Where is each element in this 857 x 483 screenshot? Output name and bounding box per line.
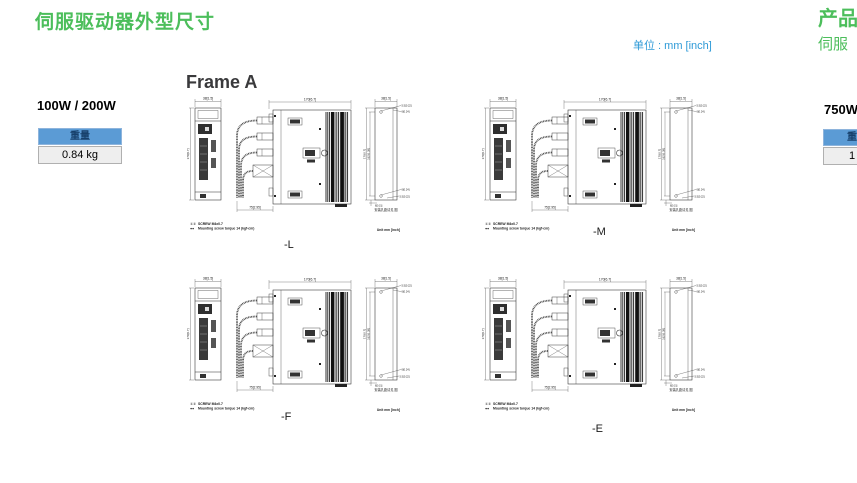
side-depth-dim: 170[6.7] (304, 98, 316, 102)
front-width-dim: 38[1.5] (498, 97, 508, 101)
page-title: 伺服驱动器外型尺寸 (35, 7, 215, 34)
rear-hole-bot1-dim: 6[0.24] (402, 188, 410, 192)
front-view (484, 99, 516, 200)
drawing-unit-note: Unit mm [inch] (377, 408, 400, 412)
screw-note-line2: Mounting screw torque 14 (kgf-cm) (198, 227, 254, 231)
rear-width-dim: 38[1.5] (381, 277, 391, 281)
weight-table: 重量 0.84 kg (38, 128, 122, 164)
screw-note-line1: SCREW M4x0.7 (493, 222, 518, 226)
cable-clearance-dim: 75[2.95] (544, 206, 556, 210)
weight-table-header: 重量 (38, 128, 122, 145)
rear-hole-top2-dim: 6[0.24] (402, 290, 410, 294)
rear-mount-dim: 162[6.38] (366, 148, 370, 160)
rear-hole-top2-dim: 6[0.24] (697, 110, 705, 114)
rear-mounting-note: 安装孔距请见 图 (669, 207, 692, 212)
rear-view (365, 99, 401, 206)
dimension-drawing: 38[1.5] 170[6.7] (480, 268, 712, 436)
screw-bullet-prefix: ●● (190, 407, 194, 411)
rear-hole-top2-dim: 6[0.24] (697, 290, 705, 294)
front-height-dim: 170[6.7] (481, 328, 485, 339)
heatsink-fins (621, 292, 643, 382)
screw-note-prefix: ①② (485, 402, 491, 406)
rear-hole-bot2-dim: 5.5[0.22] (400, 375, 410, 379)
screw-note-prefix: ①② (190, 222, 196, 226)
weight-table-header: 重 (823, 129, 857, 146)
rear-mounting-note: 安装孔距请见 图 (374, 387, 397, 392)
front-width-dim: 38[1.5] (498, 277, 508, 281)
next-page-weight-table: 重 1 (823, 129, 857, 165)
front-view (484, 279, 516, 380)
side-depth-dim: 170[6.7] (599, 98, 611, 102)
screw-bullet-prefix: ●● (190, 227, 194, 231)
drawing-variant-label: -E (592, 423, 603, 435)
cable-clearance-dim: 75[2.95] (544, 386, 556, 390)
screw-bullet-prefix: ●● (485, 227, 489, 231)
rear-hole-top1-dim: 5.5[0.22] (697, 104, 707, 108)
screw-note-line2: Mounting screw torque 14 (kgf-cm) (493, 227, 549, 231)
side-depth-dim: 170[6.7] (599, 278, 611, 282)
next-page-power-label: 750W (824, 102, 857, 117)
rear-hole-bot2-dim: 5.5[0.22] (695, 195, 705, 199)
drawing-unit-note: Unit mm [inch] (672, 228, 695, 232)
unit-note: 单位 : mm [inch] (633, 37, 712, 53)
rear-hole-top1-dim: 5.5[0.22] (402, 104, 412, 108)
next-page-subtitle-fragment: 伺服 (818, 33, 848, 54)
dimension-drawing: 38[1.5] 170[6.7] (480, 88, 712, 256)
drawing-unit-note: Unit mm [inch] (672, 408, 695, 412)
dimension-drawing: 38[1.5] 170[6.7] (185, 88, 417, 256)
rear-view (660, 279, 696, 386)
front-height-dim: 170[6.7] (481, 148, 485, 159)
side-depth-dim: 170[6.7] (304, 278, 316, 282)
rear-hole-bot2-dim: 5.5[0.22] (695, 375, 705, 379)
dimension-drawing: 38[1.5] 170[6.7] (185, 268, 417, 436)
front-height-dim: 170[6.7] (186, 328, 190, 339)
heatsink-fins (326, 112, 348, 202)
catalog-page: 伺服驱动器外型尺寸 单位 : mm [inch] 产品 伺服 750W 重 1 … (0, 0, 857, 483)
power-label: 100W / 200W (37, 98, 116, 113)
weight-table-value: 0.84 kg (38, 146, 122, 164)
rear-width-dim: 38[1.5] (381, 97, 391, 101)
heatsink-fins (621, 112, 643, 202)
rear-mount-dim: 162[6.38] (661, 328, 665, 340)
front-width-dim: 38[1.5] (203, 277, 213, 281)
heatsink-fins (326, 292, 348, 382)
rear-view (365, 279, 401, 386)
rear-mounting-note: 安装孔距请见 图 (669, 387, 692, 392)
screw-note-line1: SCREW M4x0.7 (198, 402, 223, 406)
front-width-dim: 38[1.5] (203, 97, 213, 101)
front-view (189, 99, 221, 200)
cables-and-connectors (237, 117, 273, 212)
rear-view (660, 99, 696, 206)
screw-note-line2: Mounting screw torque 14 (kgf-cm) (198, 407, 254, 411)
front-view (189, 279, 221, 380)
cables-and-connectors (532, 297, 568, 392)
cables-and-connectors (532, 117, 568, 212)
drawing-variant-label: -F (281, 411, 292, 423)
screw-note-line1: SCREW M4x0.7 (493, 402, 518, 406)
screw-note-line2: Mounting screw torque 14 (kgf-cm) (493, 407, 549, 411)
front-height-dim: 170[6.7] (186, 148, 190, 159)
rear-hole-bot1-dim: 6[0.24] (697, 368, 705, 372)
rear-hole-top2-dim: 6[0.24] (402, 110, 410, 114)
screw-note-line1: SCREW M4x0.7 (198, 222, 223, 226)
rear-hole-bot1-dim: 6[0.24] (697, 188, 705, 192)
rear-hole-bot2-dim: 5.5[0.22] (400, 195, 410, 199)
cable-clearance-dim: 75[2.95] (249, 206, 261, 210)
rear-hole-top1-dim: 5.5[0.22] (402, 284, 412, 288)
rear-mounting-note: 安装孔距请见 图 (374, 207, 397, 212)
drawing-variant-label: -M (593, 226, 606, 238)
screw-note-prefix: ①② (485, 222, 491, 226)
rear-width-dim: 38[1.5] (676, 97, 686, 101)
drawing-variant-label: -L (284, 239, 294, 251)
cables-and-connectors (237, 297, 273, 392)
drawing-unit-note: Unit mm [inch] (377, 228, 400, 232)
rear-mount-dim: 162[6.38] (661, 148, 665, 160)
rear-width-dim: 38[1.5] (676, 277, 686, 281)
weight-table-value: 1 (823, 147, 857, 165)
screw-bullet-prefix: ●● (485, 407, 489, 411)
next-page-title-fragment: 产品 (818, 2, 857, 31)
cable-clearance-dim: 75[2.95] (249, 386, 261, 390)
rear-hole-top1-dim: 5.5[0.22] (697, 284, 707, 288)
screw-note-prefix: ①② (190, 402, 196, 406)
rear-hole-bot1-dim: 6[0.24] (402, 368, 410, 372)
rear-mount-dim: 162[6.38] (366, 328, 370, 340)
